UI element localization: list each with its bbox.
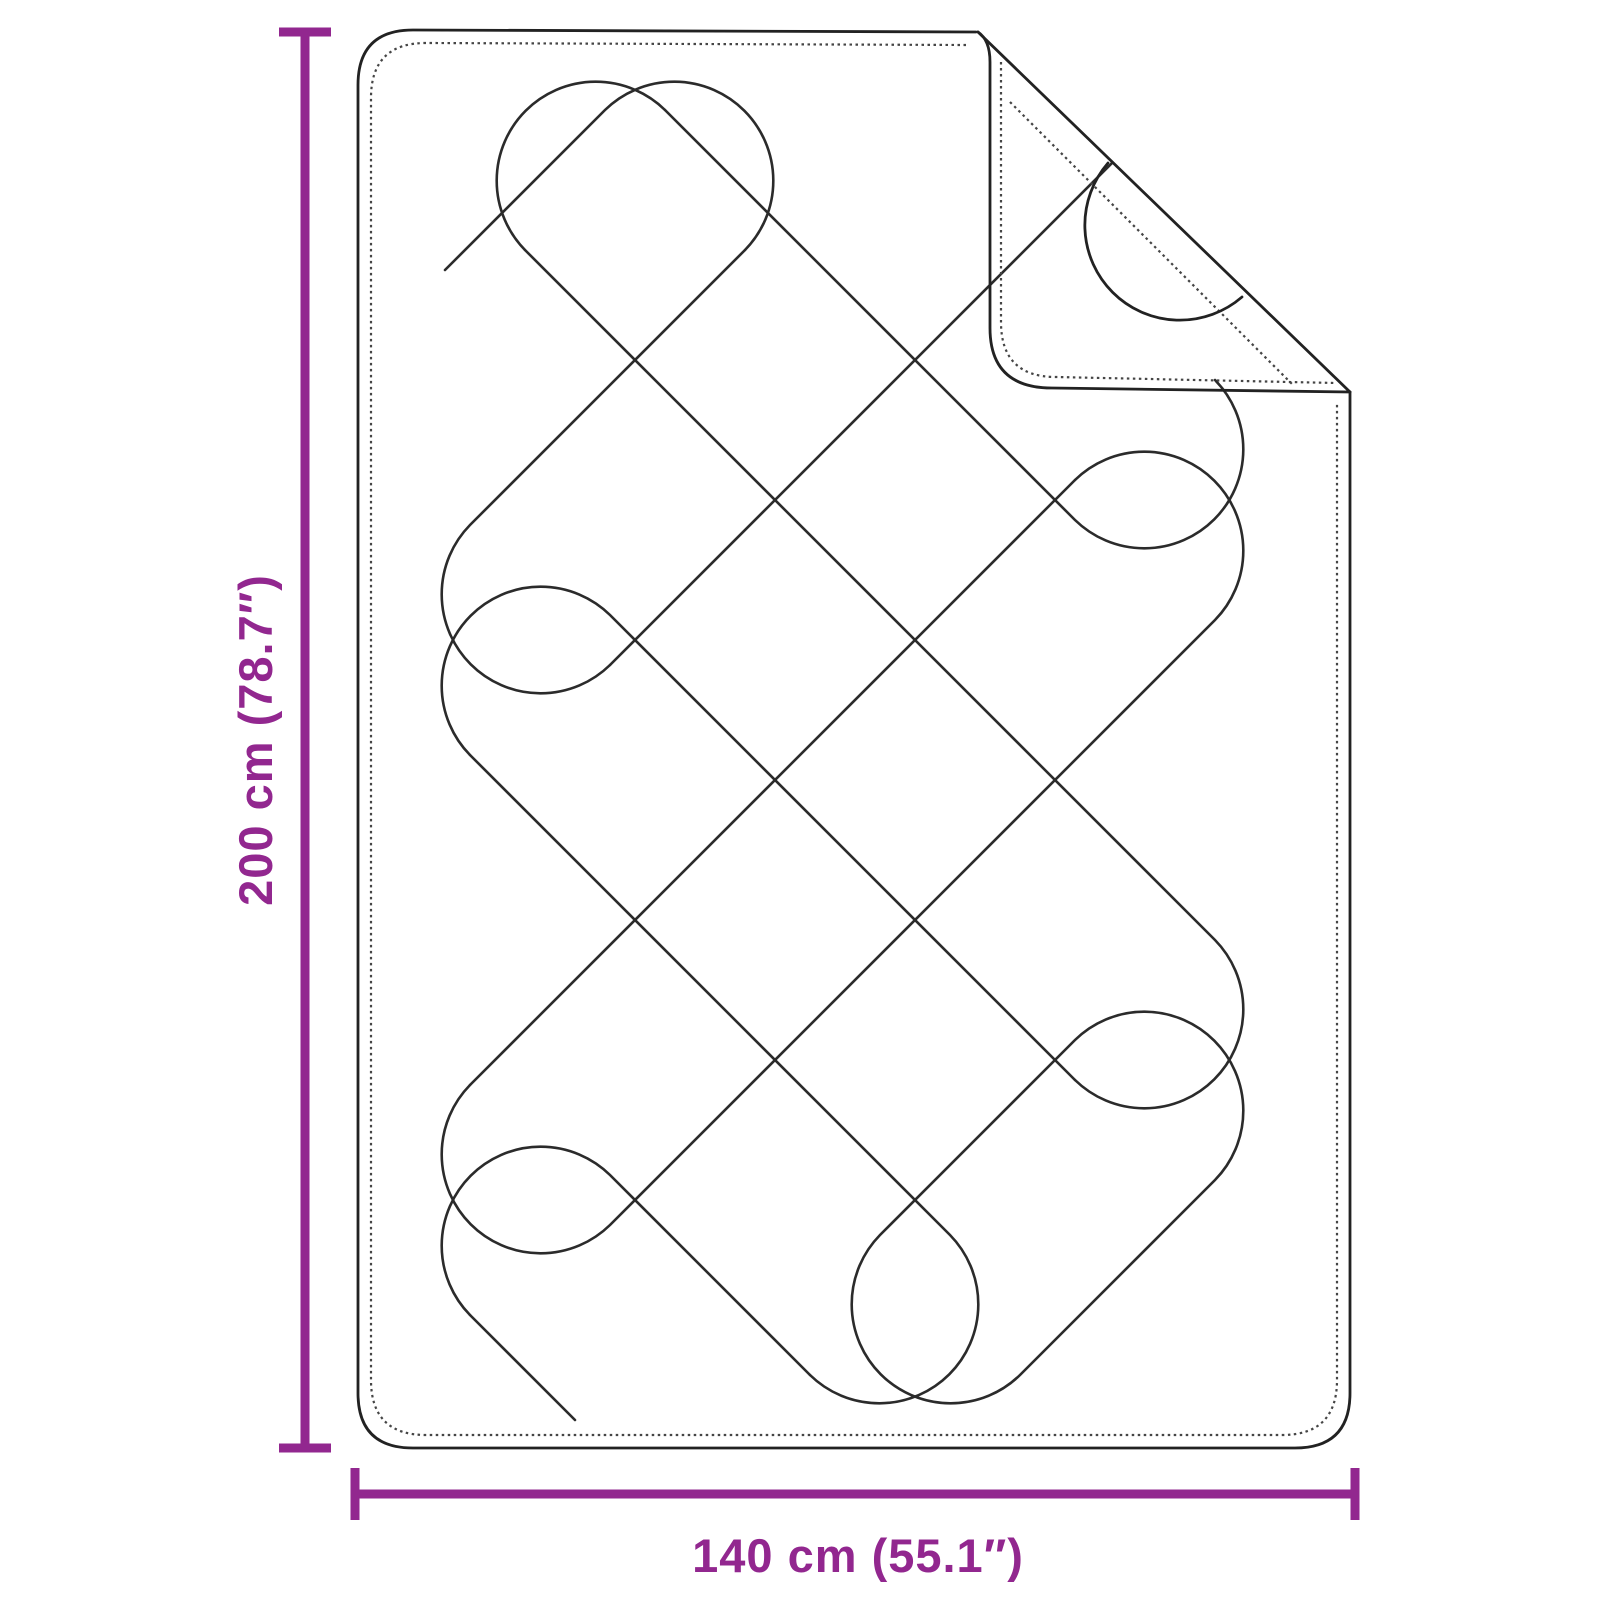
width-label: 140 cm (55.1″) — [692, 1529, 1024, 1582]
blanket-body-edge — [358, 30, 1350, 1448]
product-dimension-diagram: 200 cm (78.7″) 140 cm (55.1″) — [0, 0, 1600, 1600]
width-dimension — [355, 1468, 1355, 1520]
quilt-stitch-path — [445, 82, 773, 270]
flap-fold-stitch — [1010, 102, 1292, 384]
fold-crease-edge — [978, 32, 1350, 392]
quilt-stitch-path — [470, 1315, 575, 1420]
quilt-stitch-path — [665, 110, 1243, 548]
fold-flap-quilt-circle — [1085, 163, 1242, 320]
quilt-stitch-path — [442, 452, 1244, 1254]
quilt-pattern — [442, 82, 1244, 1420]
blanket-outline — [358, 30, 1350, 1448]
quilt-stitch-path — [442, 587, 1075, 1080]
height-label: 200 cm (78.7″) — [229, 574, 282, 906]
body-seam-stitch — [371, 43, 1337, 1435]
quilt-stitch-path — [470, 755, 978, 1403]
quilt-stitch-path — [852, 1012, 1244, 1404]
quilt-stitch-path — [470, 480, 1075, 1085]
quilt-stitch-path — [497, 82, 665, 250]
height-dimension — [279, 32, 331, 1448]
quilt-stitch-path — [442, 250, 745, 693]
quilt-stitch-path — [525, 250, 1243, 1108]
blanket-diagram-canvas: 200 cm (78.7″) 140 cm (55.1″) — [0, 0, 1600, 1600]
seam-stitch-lines — [371, 43, 1337, 1435]
